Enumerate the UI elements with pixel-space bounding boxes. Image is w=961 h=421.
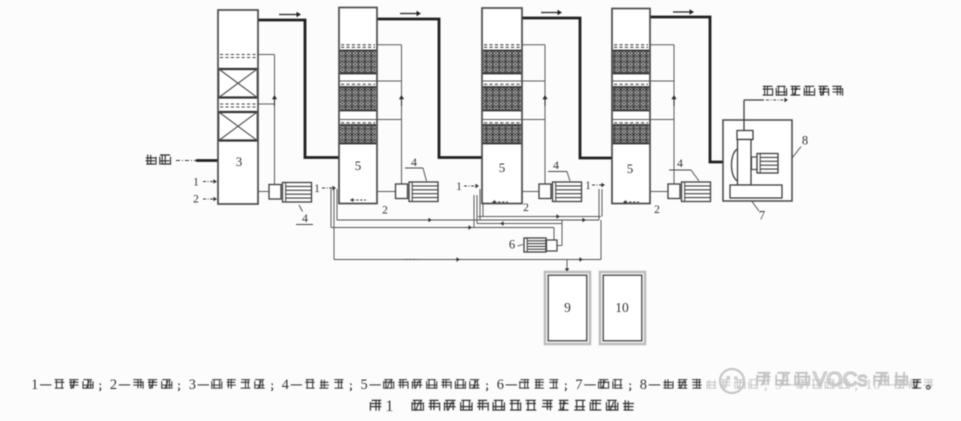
svg-text:8: 8 xyxy=(802,134,808,148)
svg-text:4: 4 xyxy=(282,377,289,393)
svg-text:8: 8 xyxy=(640,377,647,393)
svg-text:6: 6 xyxy=(497,377,504,393)
svg-text:10: 10 xyxy=(615,300,629,315)
svg-text:1: 1 xyxy=(31,377,38,393)
svg-text:3: 3 xyxy=(236,154,243,169)
svg-text:5: 5 xyxy=(360,377,367,393)
svg-text:5: 5 xyxy=(355,158,362,173)
svg-text:5: 5 xyxy=(499,160,506,175)
svg-text:1: 1 xyxy=(385,397,393,415)
svg-text:1: 1 xyxy=(314,183,320,195)
svg-text:4: 4 xyxy=(677,156,683,170)
svg-text:2: 2 xyxy=(382,205,388,217)
svg-text:2: 2 xyxy=(110,377,117,393)
svg-text:4: 4 xyxy=(411,155,417,169)
svg-text:5: 5 xyxy=(627,161,634,176)
svg-text:6: 6 xyxy=(509,238,515,252)
svg-text:1: 1 xyxy=(585,180,591,192)
svg-text:2: 2 xyxy=(523,202,529,214)
svg-text:7: 7 xyxy=(759,209,765,223)
svg-text:4: 4 xyxy=(553,158,559,172)
svg-text:1: 1 xyxy=(456,181,462,193)
svg-text:2: 2 xyxy=(654,204,660,216)
svg-text:3: 3 xyxy=(189,377,196,393)
svg-text:VOCs: VOCs xyxy=(813,368,868,391)
svg-text:7: 7 xyxy=(575,377,582,393)
svg-text:2: 2 xyxy=(193,194,199,206)
svg-text:4: 4 xyxy=(302,211,308,225)
svg-text:9: 9 xyxy=(564,300,571,315)
svg-text:1: 1 xyxy=(193,177,199,189)
